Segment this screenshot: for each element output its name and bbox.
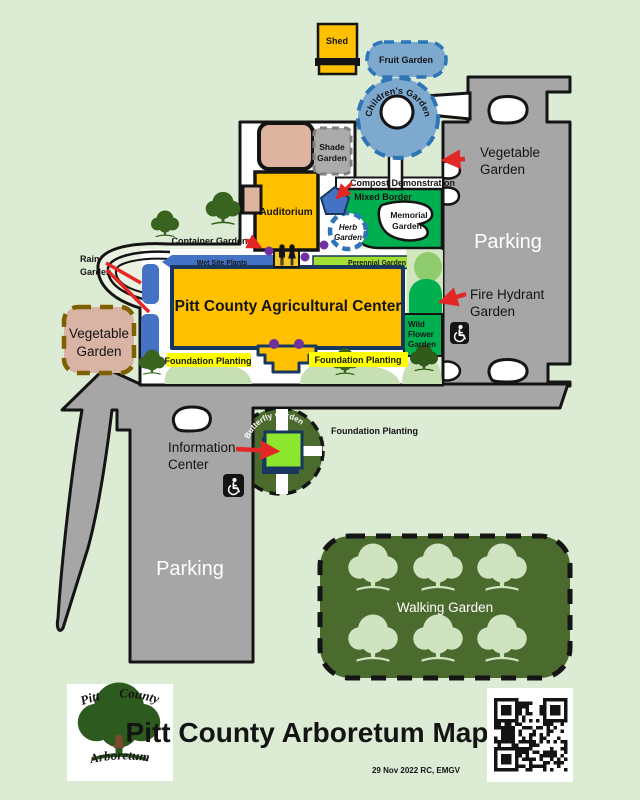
parking-right-label: Parking	[474, 231, 542, 253]
planter-dot	[269, 339, 279, 349]
parking-edge-bump	[443, 362, 460, 381]
parking-left-label: Parking	[156, 558, 224, 580]
herb-garden-label: Garden	[334, 233, 362, 242]
wheelchair-icon	[450, 322, 469, 344]
auditorium-label: Auditorium	[259, 207, 312, 218]
shade-garden-label: Shade	[319, 142, 345, 152]
vegetable-garden-right-label: Garden	[480, 162, 525, 177]
planter-dot	[301, 253, 310, 262]
vegetable-garden-left-label: Garden	[76, 344, 121, 359]
date-note: 29 Nov 2022 RC, EMGV	[372, 766, 461, 775]
shade-garden-label: Garden	[317, 153, 347, 163]
planter-dot	[320, 241, 329, 250]
annex-building-small	[243, 186, 261, 213]
parking-island	[489, 96, 527, 123]
wild-flower-garden-label: Flower	[408, 330, 434, 339]
memorial-garden-label: Memorial	[390, 210, 427, 220]
parking-island	[173, 407, 210, 431]
wheelchair-icon	[223, 474, 244, 497]
planter-dot	[294, 339, 304, 349]
foundation-planting-butterfly-label: Foundation Planting	[331, 426, 418, 436]
qr-code	[487, 688, 573, 782]
memorial-garden-label: Garden	[392, 221, 422, 231]
rain-garden-label: Rain	[80, 254, 100, 264]
fruit-garden-label: Fruit Garden	[379, 55, 433, 65]
parking-island	[489, 359, 527, 382]
childrens-garden-plaza	[381, 96, 413, 128]
shed-step	[319, 64, 356, 74]
perennial-garden-label: Perennial Garden	[348, 260, 406, 267]
fire-hydrant-garden-area	[409, 279, 442, 313]
annex-building	[259, 123, 313, 169]
compost-demonstration-label: Compost Demonstration	[350, 178, 455, 188]
page-title: Pitt County Arboretum Map	[126, 717, 489, 748]
foundation-planting-left-label: Foundation Planting	[165, 356, 252, 366]
information-center-arrow	[236, 449, 274, 451]
herb-garden-label: Herb	[339, 223, 357, 232]
wet-site-plants-label: Wet Site Plants	[197, 260, 248, 267]
walking-garden-label: Walking Garden	[397, 600, 493, 615]
shed-label: Shed	[326, 36, 348, 46]
wild-flower-garden-label: Garden	[408, 340, 436, 349]
fire-hydrant-garden-label: Garden	[470, 304, 515, 319]
wild-flower-garden-label: Wild	[408, 320, 425, 329]
parking-edge-bump	[443, 161, 460, 178]
vegetable-garden-left-label: Vegetable	[69, 326, 129, 341]
rain-garden-strip	[142, 264, 159, 304]
information-center-label: Information	[168, 440, 236, 455]
foundation-planting-right-label: Foundation Planting	[315, 355, 402, 365]
planter-dot	[265, 247, 274, 256]
arboretum-map: Butterfly Garden	[0, 0, 640, 800]
fire-hydrant-garden-label: Fire Hydrant	[470, 287, 545, 302]
parking-edge-bump	[443, 187, 459, 204]
container-gardens-label: Container Gardens	[171, 236, 252, 246]
shrub-patch	[414, 252, 442, 282]
map-canvas: Butterfly Garden	[0, 0, 640, 800]
vegetable-garden-arrow	[447, 159, 465, 160]
mixed-border-label: Mixed Border	[354, 192, 412, 202]
agricultural-center-label: Pitt County Agricultural Center	[175, 298, 402, 315]
information-center-label: Center	[168, 457, 209, 472]
vegetable-garden-right-label: Vegetable	[480, 145, 540, 160]
